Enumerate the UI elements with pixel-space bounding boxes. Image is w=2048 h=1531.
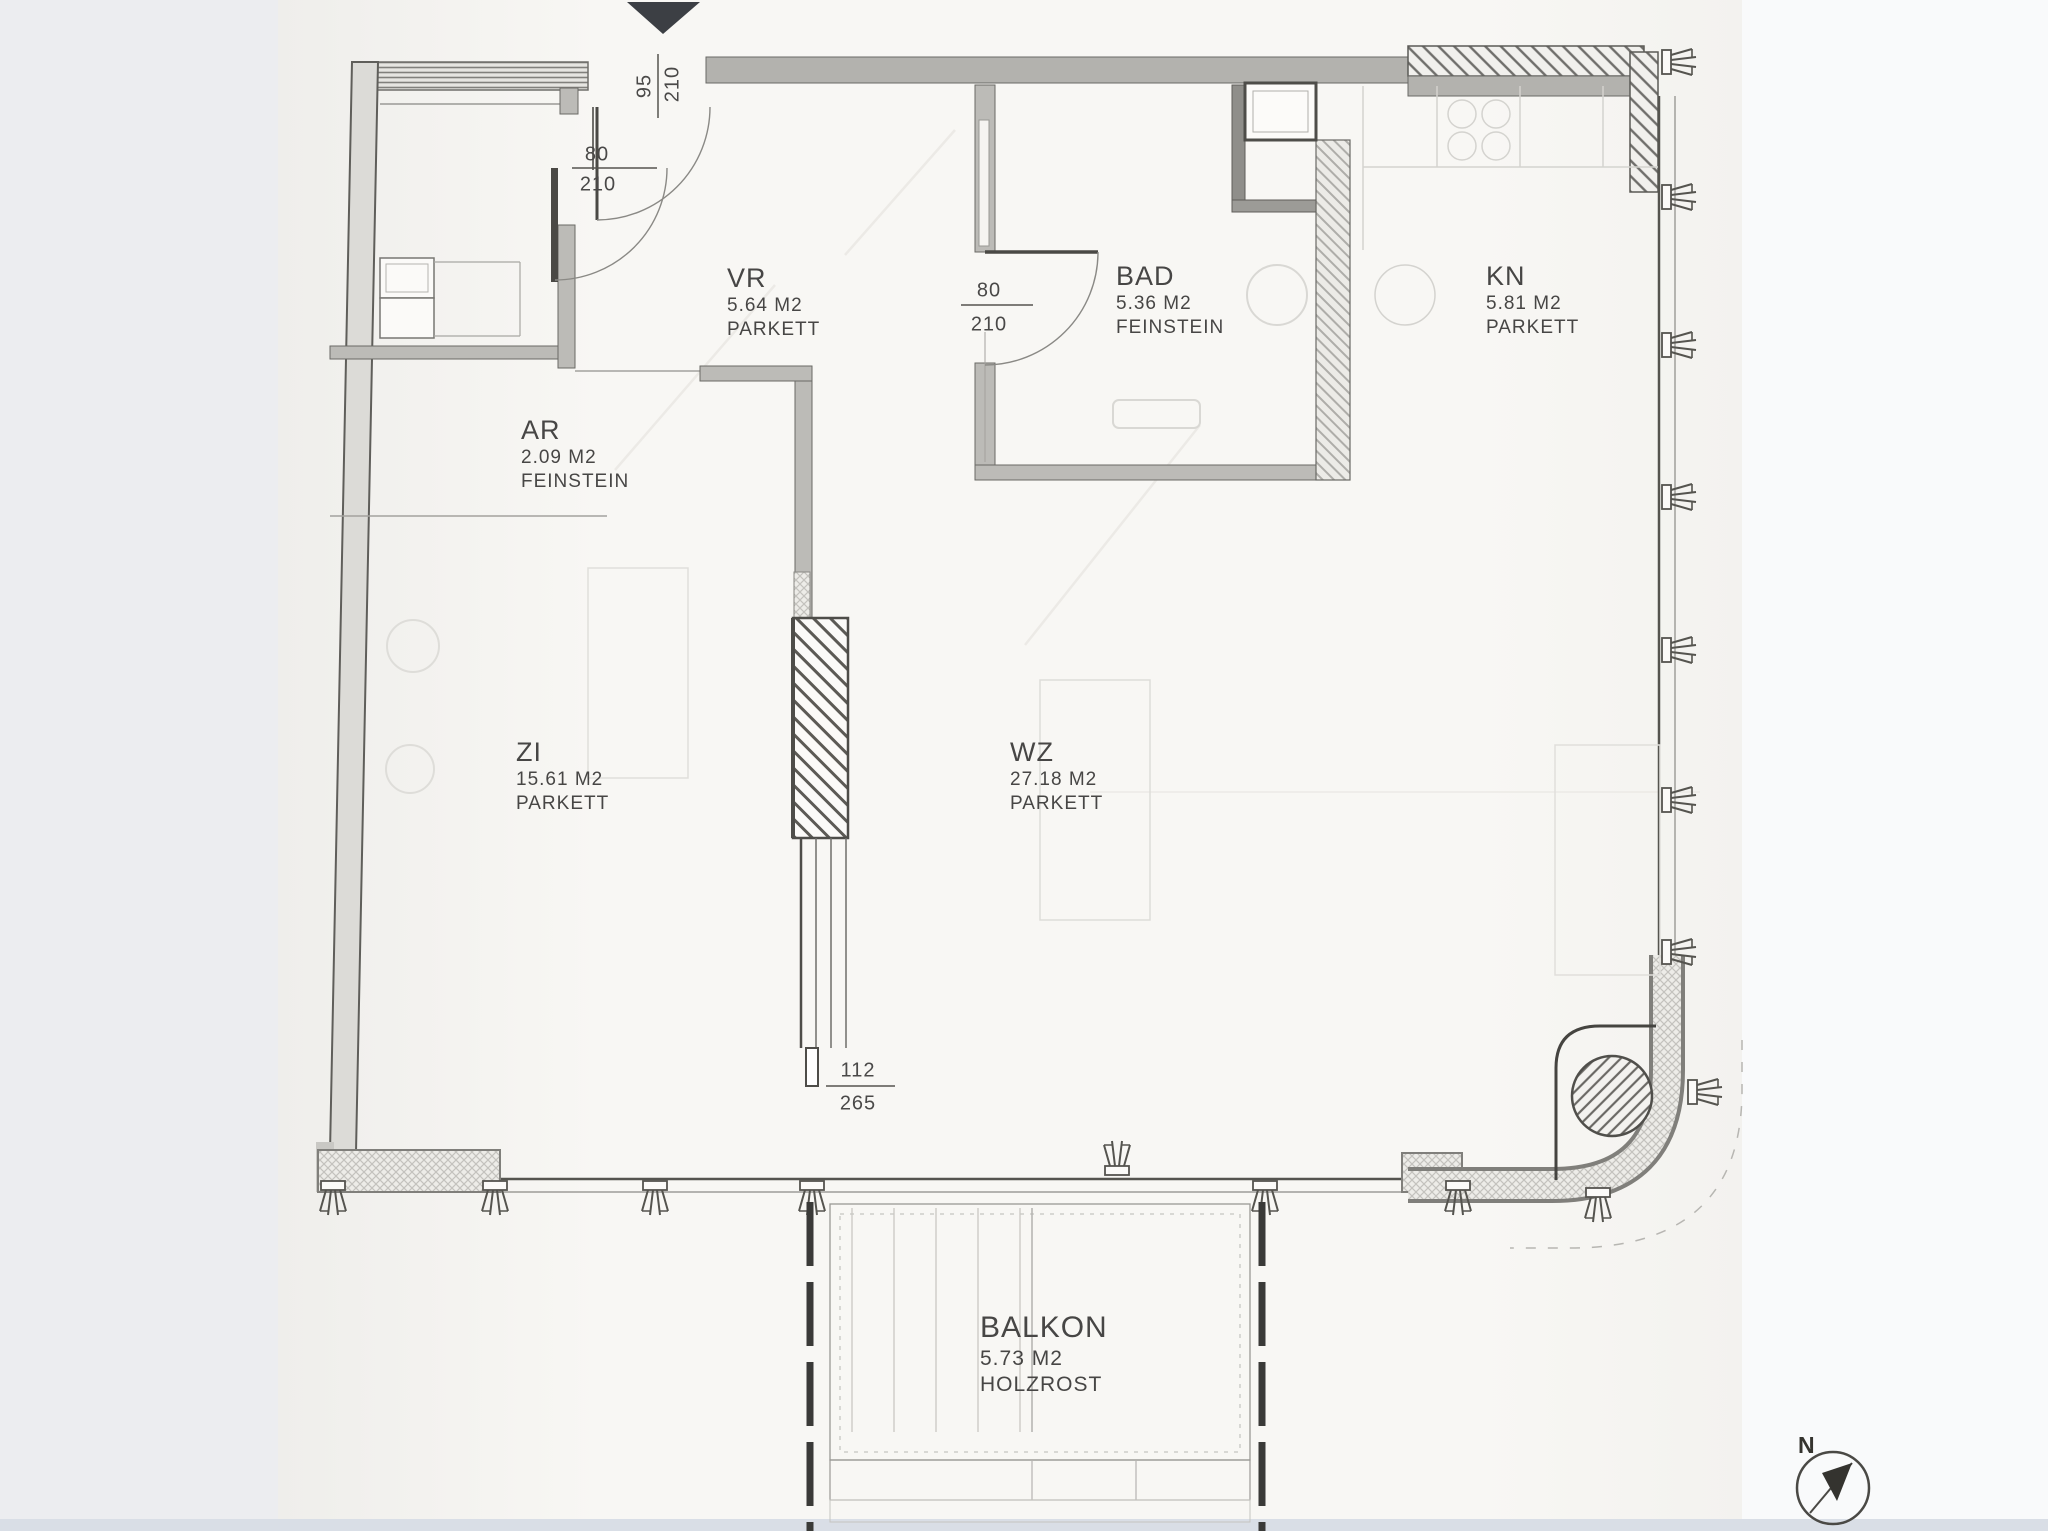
room-name: BALKON [980,1312,1108,1344]
north-label: N [1798,1432,1815,1459]
room-floor: PARKETT [1486,318,1579,338]
interior-walls [330,88,812,620]
round-column [1572,1056,1652,1136]
north-compass-icon [1797,1452,1869,1524]
room-label-ar: AR 2.09 M2 FEINSTEIN [521,416,629,492]
room-area: 15.61 M2 [516,770,609,790]
room-label-kn: KN 5.81 M2 PARKETT [1486,262,1579,338]
room-area: 5.81 M2 [1486,294,1579,314]
zi-opening-height: 265 [840,1093,876,1116]
bathroom-door-arc [985,252,1098,365]
room-floor: FEINSTEIN [1116,318,1224,338]
room-floor: PARKETT [1010,794,1103,814]
entry-closet [380,258,520,338]
room-label-vr: VR 5.64 M2 PARKETT [727,264,820,340]
room-label-zi: ZI 15.61 M2 PARKETT [516,738,609,814]
room-name: BAD [1116,262,1224,290]
paper-creases [615,130,1700,792]
room-floor: PARKETT [727,320,820,340]
room-label-wz: WZ 27.18 M2 PARKETT [1010,738,1103,814]
room-name: WZ [1010,738,1103,766]
room-name: VR [727,264,820,292]
room-name: AR [521,416,629,444]
room-floor: FEINSTEIN [521,472,629,492]
room-name: KN [1486,262,1579,290]
room-area: 5.64 M2 [727,296,820,316]
room-area: 5.36 M2 [1116,294,1224,314]
floorplan-page: VR 5.64 M2 PARKETT BAD 5.36 M2 FEINSTEIN… [0,0,2048,1531]
room-name: ZI [516,738,609,766]
zi-opening-width: 112 [841,1060,876,1083]
entry-door-width: 95 [634,74,657,98]
entrance-marker-triangle [627,2,700,34]
room-floor: PARKETT [516,794,609,814]
ar-door-width: 80 [585,144,609,167]
room-label-bad: BAD 5.36 M2 FEINSTEIN [1116,262,1224,338]
kitchen-counter-faint [1363,86,1660,975]
room-area: 5.73 M2 [980,1348,1108,1370]
bad-door-width: 80 [977,280,1001,303]
ar-door-height: 210 [580,174,616,197]
room-area: 27.18 M2 [1010,770,1103,790]
entry-door-height: 210 [662,66,685,102]
bad-door-height: 210 [971,314,1007,337]
room-label-balkon: BALKON 5.73 M2 HOLZROST [980,1312,1108,1396]
facade-anchors-right [1662,49,1722,1105]
room-area: 2.09 M2 [521,448,629,468]
shaft-and-partition [793,618,848,1086]
room-floor: HOLZROST [980,1374,1108,1396]
